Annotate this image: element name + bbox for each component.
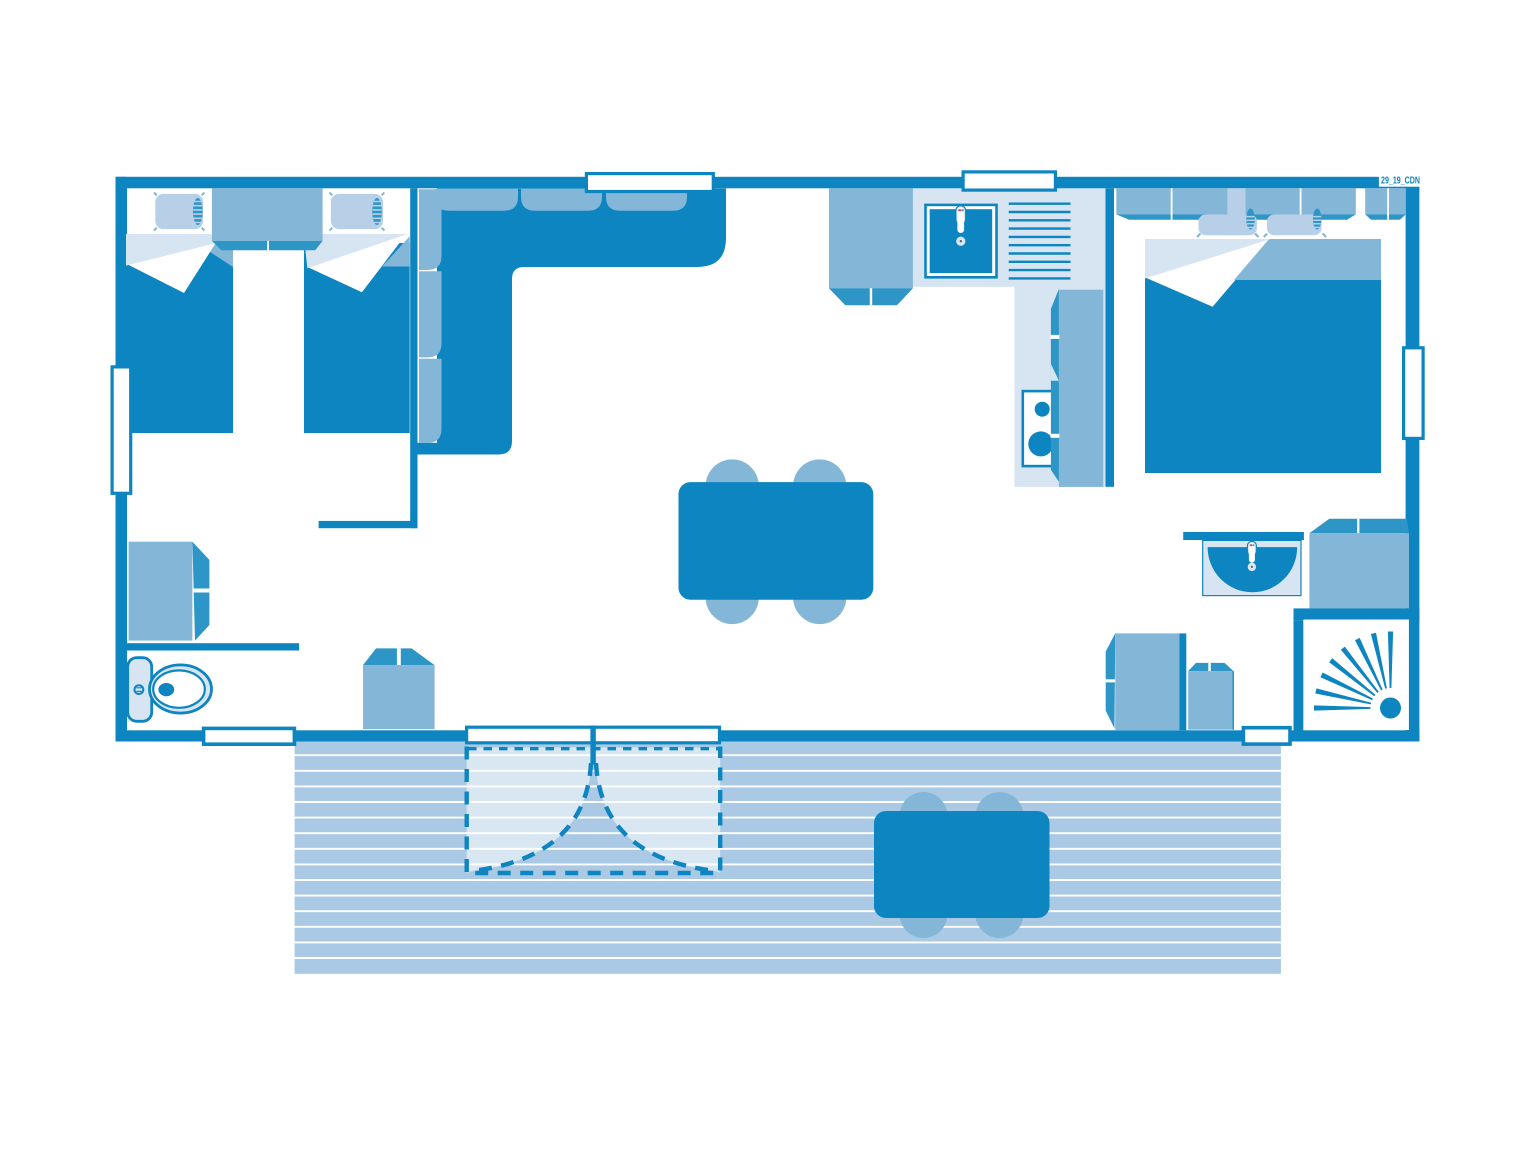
svg-text:29_19_CDN: 29_19_CDN <box>1381 176 1420 187</box>
